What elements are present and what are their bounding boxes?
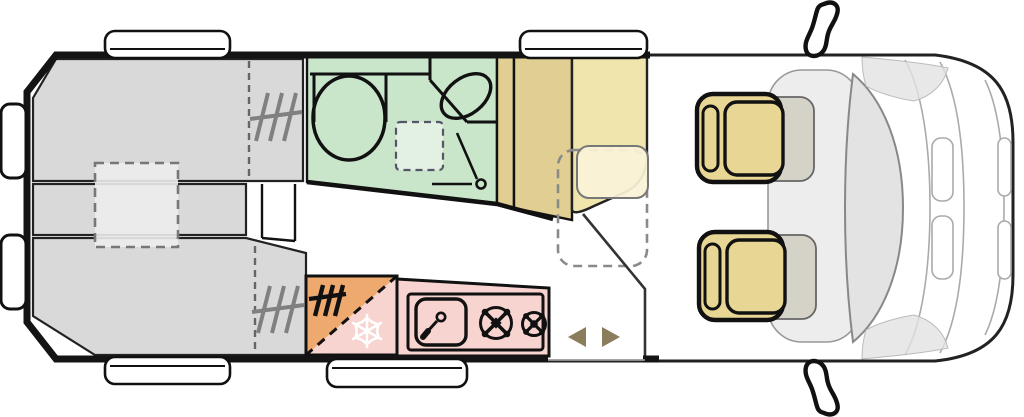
kitchen-unit xyxy=(397,279,549,356)
rear-door-handle-top xyxy=(1,104,26,178)
wardrobe xyxy=(497,57,572,220)
driver-seat-swivelled xyxy=(697,94,783,182)
seat-cushion xyxy=(727,240,785,313)
rear-single-bed-bottom xyxy=(33,238,306,355)
headlight-bottom xyxy=(932,216,953,279)
side-mirror-top-icon xyxy=(806,3,838,56)
dinette-table xyxy=(577,146,648,198)
washroom xyxy=(307,57,499,204)
window-top-front xyxy=(520,31,647,58)
rear-door-handles xyxy=(1,104,26,309)
shower-tray xyxy=(396,122,443,170)
window-kitchen xyxy=(327,359,467,387)
window-bottom-rear xyxy=(105,357,230,384)
passenger-seat-swivelled xyxy=(699,232,785,320)
window-top-rear xyxy=(105,31,230,58)
fridge-freezer xyxy=(306,276,397,355)
headlight-top xyxy=(932,138,953,201)
seat-cushion xyxy=(725,102,783,175)
bed-infill-cushion xyxy=(95,163,178,247)
side-mirror-bottom-icon xyxy=(806,361,838,414)
floorplan-canvas xyxy=(0,0,1024,417)
rear-door-handle-bottom xyxy=(1,235,26,309)
campervan-floorplan xyxy=(0,0,1024,417)
